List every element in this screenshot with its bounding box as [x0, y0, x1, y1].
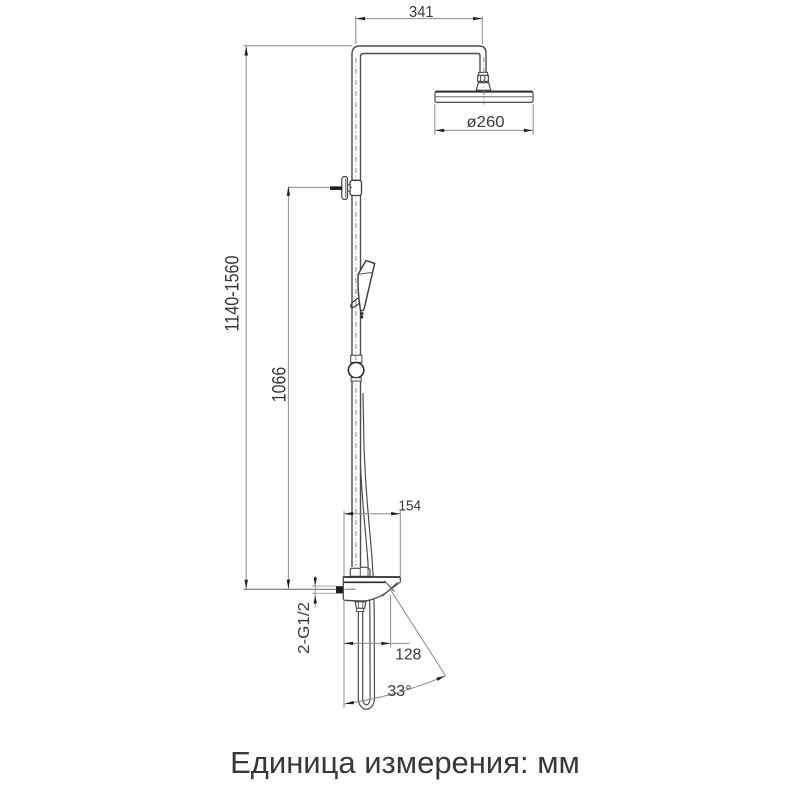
svg-text:33°: 33° [387, 683, 411, 700]
svg-text:ø260: ø260 [467, 114, 505, 131]
svg-text:341: 341 [409, 4, 434, 21]
svg-text:154: 154 [399, 498, 422, 515]
svg-text:1140-1560: 1140-1560 [223, 256, 244, 332]
svg-text:2-G1/2: 2-G1/2 [296, 602, 313, 654]
svg-text:1066: 1066 [270, 367, 291, 403]
svg-text:128: 128 [395, 647, 421, 664]
svg-text:Единица измерения: мм: Единица измерения: мм [230, 745, 580, 780]
